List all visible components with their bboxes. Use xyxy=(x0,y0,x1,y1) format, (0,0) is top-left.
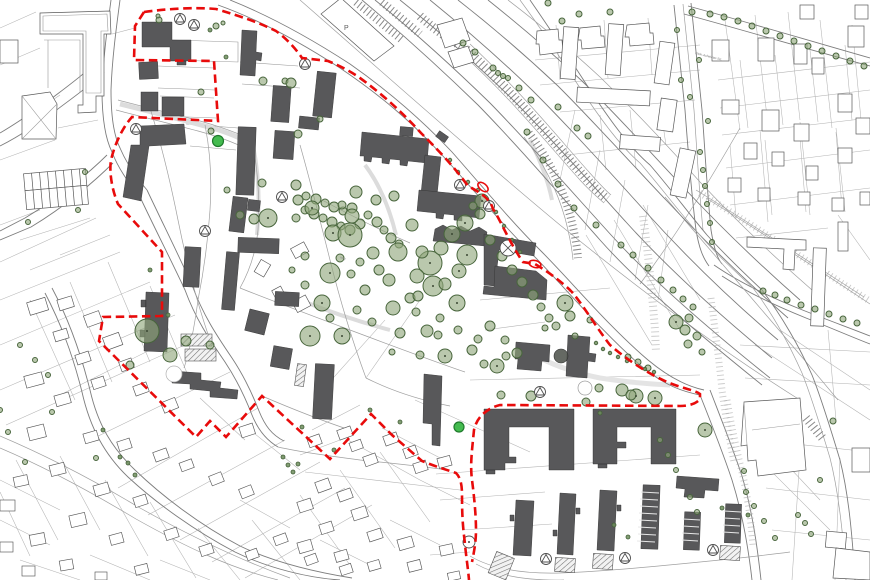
svg-text:P: P xyxy=(344,25,349,32)
